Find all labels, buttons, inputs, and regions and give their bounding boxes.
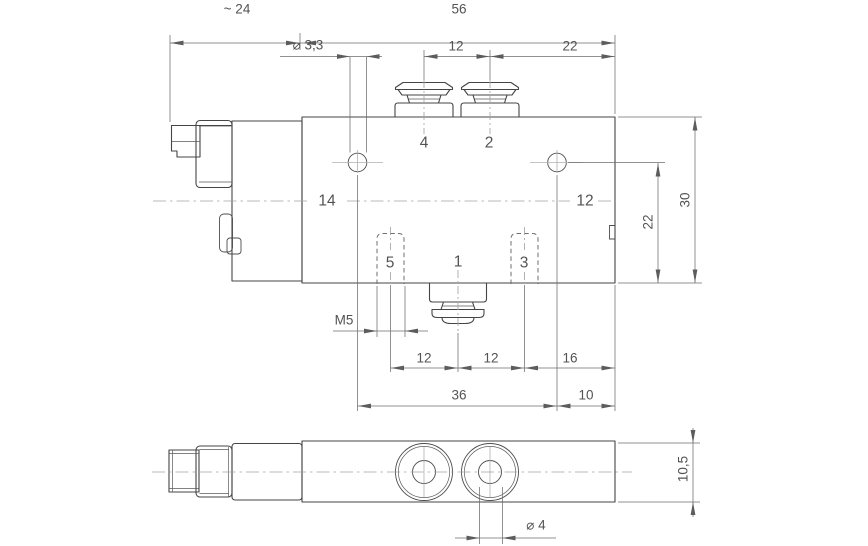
dim-depth-label: 10,5 xyxy=(676,456,691,482)
dim-depth: 10,5 xyxy=(618,428,700,517)
valve-dimension-drawing: 4 2 14 12 5 1 3 ~ 24 56 ⌀ 3,3 xyxy=(0,0,868,546)
front-centerlines xyxy=(153,80,616,332)
dim-1-3-label: 12 xyxy=(483,351,498,366)
dim-hole-dia-label: ⌀ 3,3 xyxy=(293,38,324,53)
front-view: 4 2 14 12 5 1 3 ~ 24 56 ⌀ 3,3 xyxy=(153,2,702,412)
bottom-coil-block xyxy=(196,446,232,497)
dim-3-edge-label: 16 xyxy=(562,351,577,366)
dim-connector-width-label: ~ 24 xyxy=(224,2,251,17)
dim-port-spacing-label: 12 xyxy=(448,39,463,54)
technical-drawing-page: 4 2 14 12 5 1 3 ~ 24 56 ⌀ 3,3 xyxy=(0,0,868,546)
port-4-label: 4 xyxy=(420,135,429,152)
body-edge-notch xyxy=(610,226,616,240)
dim-body-height-label: 30 xyxy=(678,192,693,207)
dim-port-edge-label: 22 xyxy=(562,39,577,54)
dim-thread-callout: M5 xyxy=(333,286,428,337)
dim-hole-edge-label: 10 xyxy=(578,388,593,403)
port-2-label: 2 xyxy=(485,135,494,152)
mounting-clip xyxy=(220,214,242,254)
coil-block xyxy=(196,121,232,188)
port-1-label: 1 xyxy=(454,254,463,271)
port-5-label: 5 xyxy=(386,255,395,272)
pilot-12-label: 12 xyxy=(576,193,593,210)
dim-hole-height-label: 22 xyxy=(641,214,656,229)
connector-plug xyxy=(172,126,233,158)
dim-thread-label: M5 xyxy=(335,313,354,328)
dim-bore-label: ⌀ 4 xyxy=(526,518,546,533)
port-3-label: 3 xyxy=(520,255,529,272)
dim-body-width-label: 56 xyxy=(451,2,466,17)
pilot-14-label: 14 xyxy=(318,193,336,210)
dim-5-1-label: 12 xyxy=(416,351,431,366)
dim-top-ports: ⌀ 3,3 12 22 xyxy=(280,38,615,153)
dim-top-widths: ~ 24 56 xyxy=(170,2,615,123)
bottom-view: 10,5 ⌀ 4 xyxy=(152,428,700,544)
dim-hole-spacing-label: 36 xyxy=(451,388,466,403)
bottom-connector-plug xyxy=(169,450,199,492)
bottom-valve-body xyxy=(302,441,615,502)
